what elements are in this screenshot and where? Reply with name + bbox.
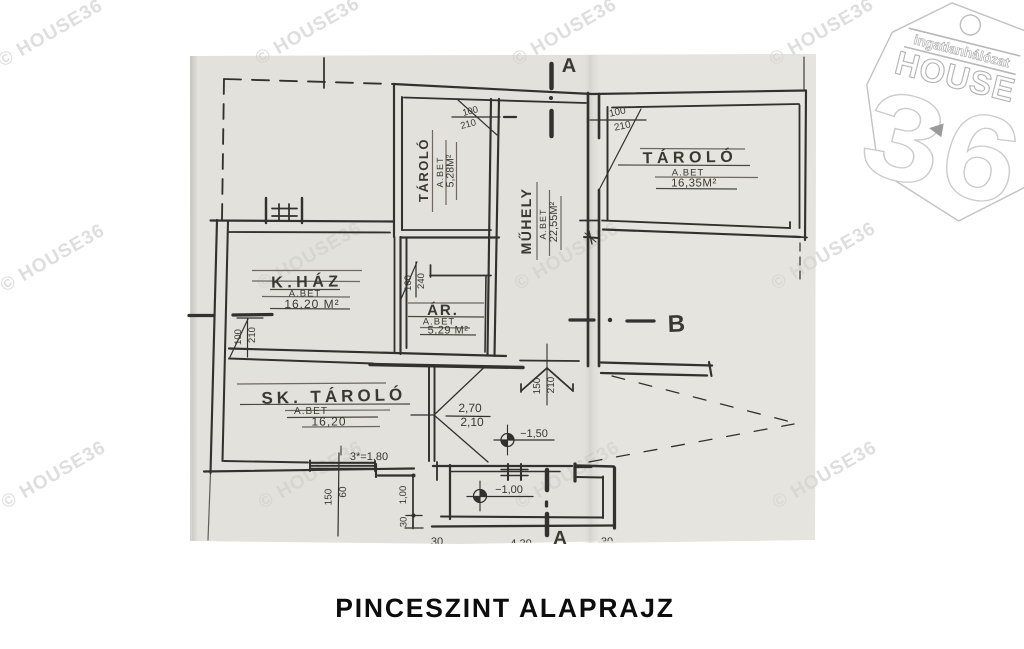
svg-text:5,28M²: 5,28M² [445,154,457,187]
svg-text:16,35M²: 16,35M² [671,178,717,190]
svg-text:MŰHELY: MŰHELY [518,188,534,255]
svg-text:150: 150 [532,377,543,394]
svg-text:−1,00: −1,00 [495,484,523,496]
svg-text:PINCESZINT ALAPRAJZ: PINCESZINT ALAPRAJZ [335,593,674,623]
svg-text:4,20: 4,20 [510,538,531,550]
svg-text:2,70: 2,70 [458,401,482,415]
svg-text:22,55M²: 22,55M² [548,201,560,242]
svg-text:B: B [667,310,685,338]
svg-text:240: 240 [416,273,427,289]
svg-text:150: 150 [324,488,335,505]
svg-text:16,20 M²: 16,20 M² [284,297,339,311]
svg-text:100: 100 [233,329,244,345]
svg-text:3*=1,80: 3*=1,80 [350,451,388,463]
svg-text:A.BET: A.BET [538,208,548,239]
svg-text:30: 30 [431,536,443,548]
svg-text:210: 210 [247,327,258,343]
svg-text:A.BET: A.BET [435,156,445,187]
svg-text:TÁROLÓ: TÁROLÓ [642,147,737,168]
svg-text:A: A [553,528,567,549]
svg-text:16,20: 16,20 [311,415,346,429]
svg-text:1,00: 1,00 [398,486,409,505]
svg-text:210: 210 [546,376,557,393]
svg-text:30: 30 [399,517,410,528]
svg-text:60: 60 [338,486,349,498]
svg-text:100: 100 [403,275,414,291]
svg-text:5,29 M²: 5,29 M² [428,325,469,337]
svg-text:−1,50: −1,50 [520,428,548,440]
svg-text:SK. TÁROLÓ: SK. TÁROLÓ [261,384,406,408]
svg-text:2,10: 2,10 [460,415,484,429]
svg-text:A: A [562,55,576,77]
svg-text:TÁROLÓ: TÁROLÓ [416,138,431,202]
